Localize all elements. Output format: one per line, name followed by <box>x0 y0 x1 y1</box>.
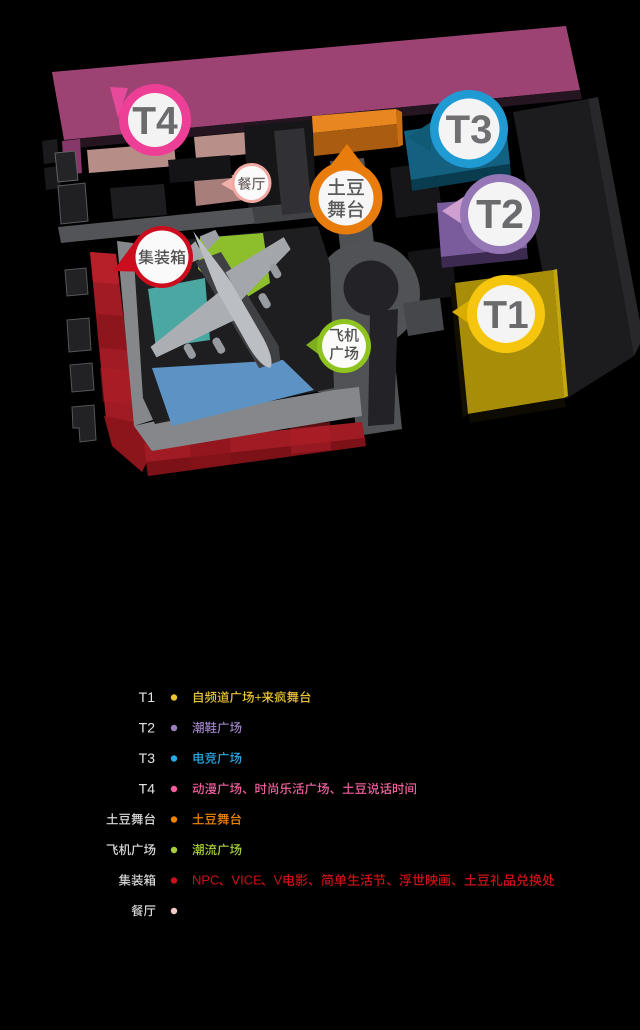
svg-text:T3: T3 <box>139 750 156 766</box>
svg-text:V: V <box>274 873 283 888</box>
svg-text:T2: T2 <box>476 191 524 237</box>
svg-text:VICE: VICE <box>231 873 262 888</box>
svg-text:T4: T4 <box>139 781 156 797</box>
svg-text:T4: T4 <box>132 100 178 143</box>
svg-text:T1: T1 <box>139 689 156 705</box>
svg-text:NPC: NPC <box>192 873 219 888</box>
svg-text:+: + <box>255 691 262 705</box>
svg-text:T3: T3 <box>446 108 493 152</box>
svg-text:T2: T2 <box>139 720 156 736</box>
svg-text:T1: T1 <box>483 294 529 337</box>
